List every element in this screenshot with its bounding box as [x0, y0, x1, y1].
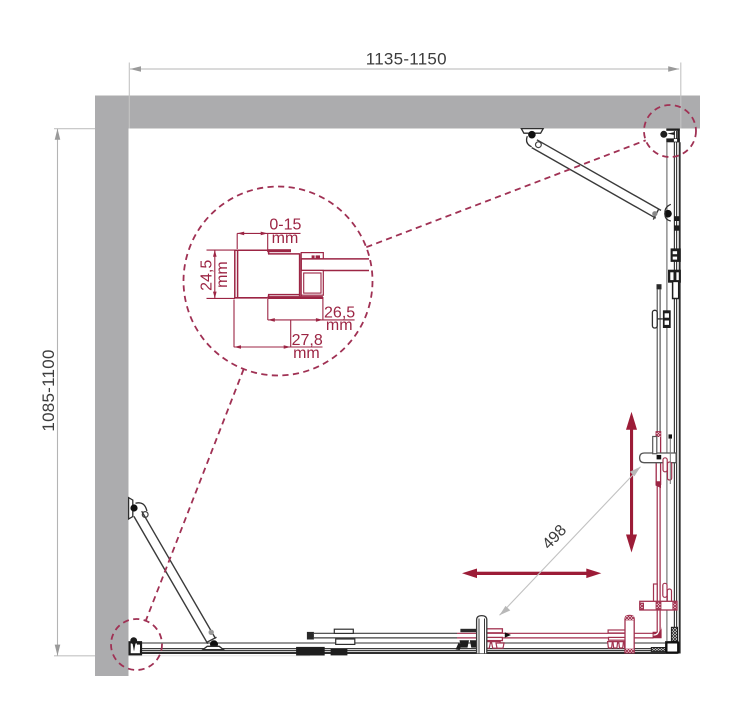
svg-text:mm: mm	[214, 261, 231, 288]
svg-text:mm: mm	[272, 230, 299, 247]
svg-text:1135-1150: 1135-1150	[366, 50, 447, 69]
svg-text:mm: mm	[293, 345, 320, 362]
svg-text:1085-1100: 1085-1100	[39, 349, 58, 431]
svg-text:mm: mm	[326, 317, 353, 334]
